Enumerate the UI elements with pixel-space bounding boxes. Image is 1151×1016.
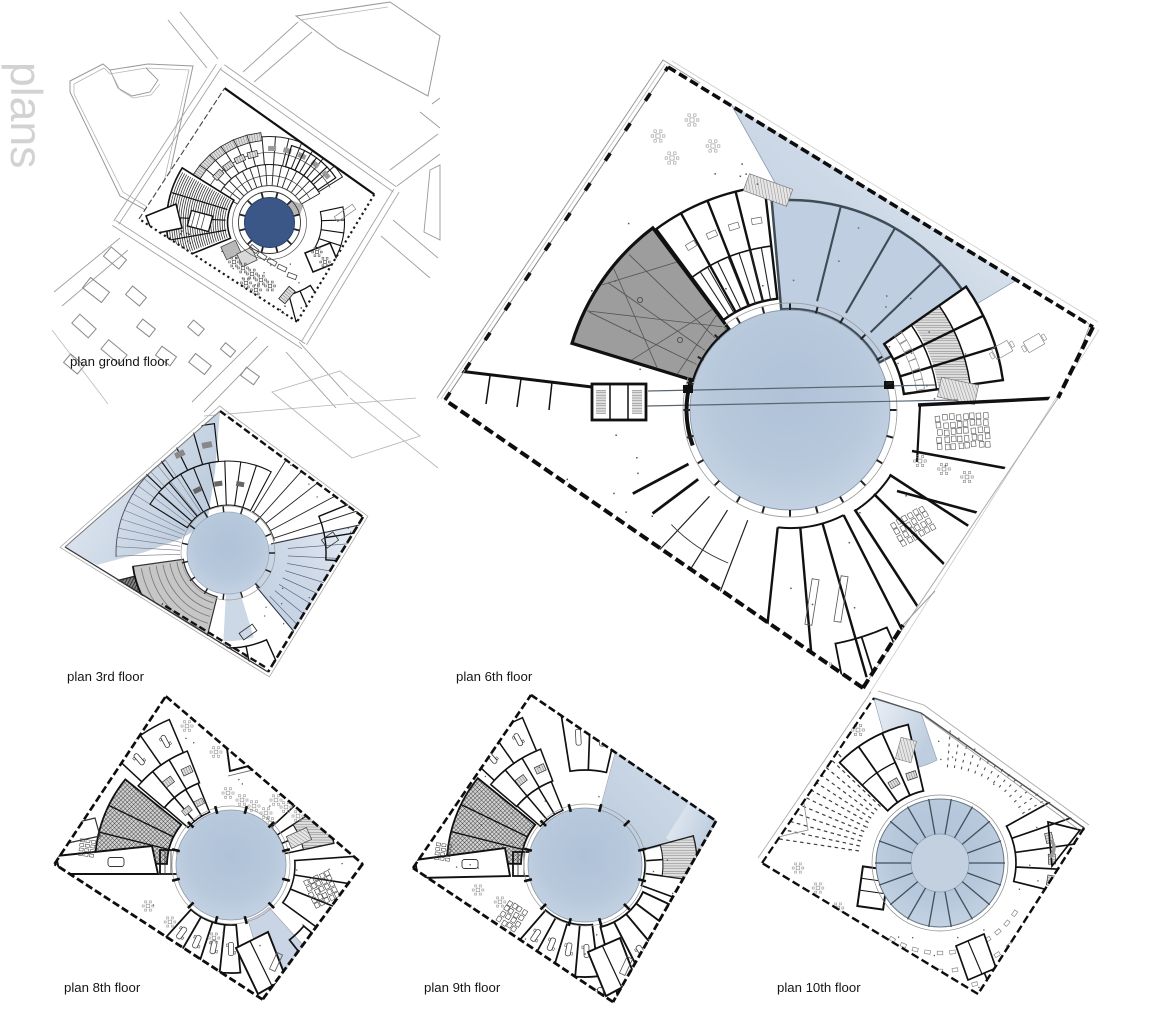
svg-text:plans: plans — [1, 62, 50, 168]
svg-text:plan 3rd floor: plan 3rd floor — [67, 669, 145, 684]
svg-text:plan ground floor: plan ground floor — [70, 354, 170, 369]
svg-text:plan 8th floor: plan 8th floor — [64, 980, 141, 995]
svg-text:plan 10th floor: plan 10th floor — [777, 980, 861, 995]
svg-text:plan 9th floor: plan 9th floor — [424, 980, 501, 995]
svg-text:plan 6th floor: plan 6th floor — [456, 669, 533, 684]
